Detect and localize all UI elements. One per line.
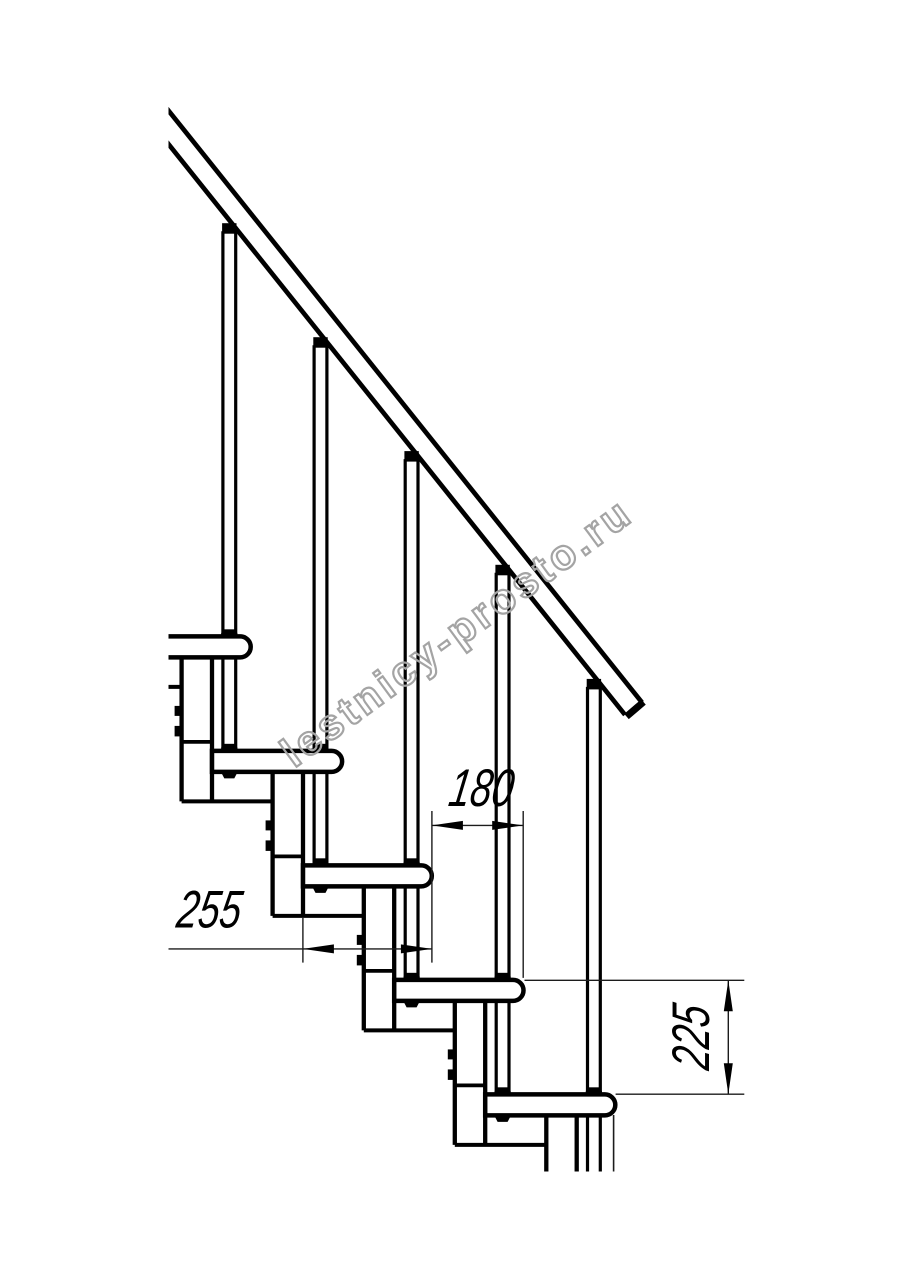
svg-text:255: 255 <box>173 880 247 939</box>
svg-text:225: 225 <box>661 1000 720 1074</box>
svg-text:180: 180 <box>445 758 518 817</box>
